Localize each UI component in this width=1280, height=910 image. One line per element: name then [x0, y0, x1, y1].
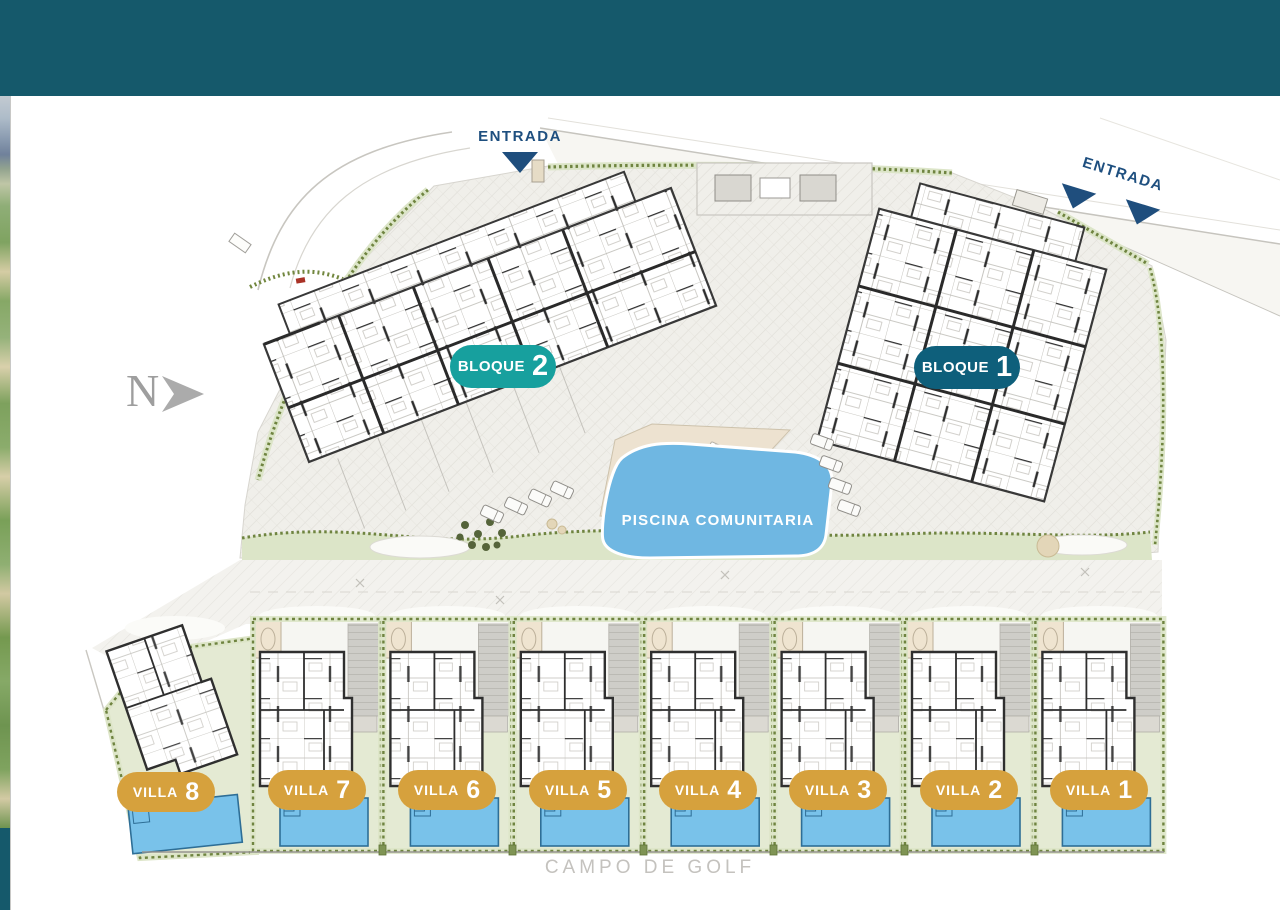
community-pool-label: PISCINA COMUNITARIA [612, 512, 824, 529]
community-pool [602, 443, 832, 558]
villa5-plot [513, 618, 643, 852]
golf-course-text: CAMPO DE GOLF [545, 857, 755, 878]
north-letter: N [126, 368, 159, 414]
villa4-plot [643, 618, 773, 852]
entrance-top-text: ENTRADA [478, 128, 562, 145]
golf-course-label: CAMPO DE GOLF [510, 857, 790, 879]
north-arrow-icon [160, 372, 208, 416]
bloque1-word: BLOQUE [922, 359, 989, 376]
villa6-plot [382, 618, 512, 852]
bloque1-badge[interactable]: BLOQUE 1 [914, 346, 1020, 389]
entrance-top-arrow-icon [502, 152, 538, 173]
bloque2-word: BLOQUE [458, 358, 525, 375]
entrance-plaza [697, 163, 872, 215]
villa8-plot [106, 622, 256, 858]
villa7-plot [252, 618, 382, 852]
tree-icon [1037, 535, 1059, 557]
site-plan-page: ENTRADA ENTRADA N BLOQUE 2 BLOQUE 1 PISC… [0, 0, 1280, 910]
villa6-badge[interactable]: VILLA 6 [398, 770, 496, 810]
bloque2-number: 2 [532, 352, 548, 381]
villa2-plot [904, 618, 1034, 852]
villa1-badge[interactable]: VILLA 1 [1050, 770, 1148, 810]
community-pool-text: PISCINA COMUNITARIA [622, 512, 815, 529]
villa5-badge[interactable]: VILLA 5 [529, 770, 627, 810]
bloque2-badge[interactable]: BLOQUE 2 [450, 345, 556, 388]
courtyard-blob [370, 536, 470, 558]
villa4-badge[interactable]: VILLA 4 [659, 770, 757, 810]
villa7-badge[interactable]: VILLA 7 [268, 770, 366, 810]
bloque1-number: 1 [996, 353, 1012, 382]
villa1-plot [1034, 618, 1164, 852]
villa3-badge[interactable]: VILLA 3 [789, 770, 887, 810]
entrance-top-label: ENTRADA [450, 128, 590, 145]
villa3-plot [774, 618, 904, 852]
north-letter-text: N [126, 365, 159, 416]
villa2-badge[interactable]: VILLA 2 [920, 770, 1018, 810]
villa-plots-row [252, 618, 1164, 852]
villa8-badge[interactable]: VILLA 8 [117, 772, 215, 812]
